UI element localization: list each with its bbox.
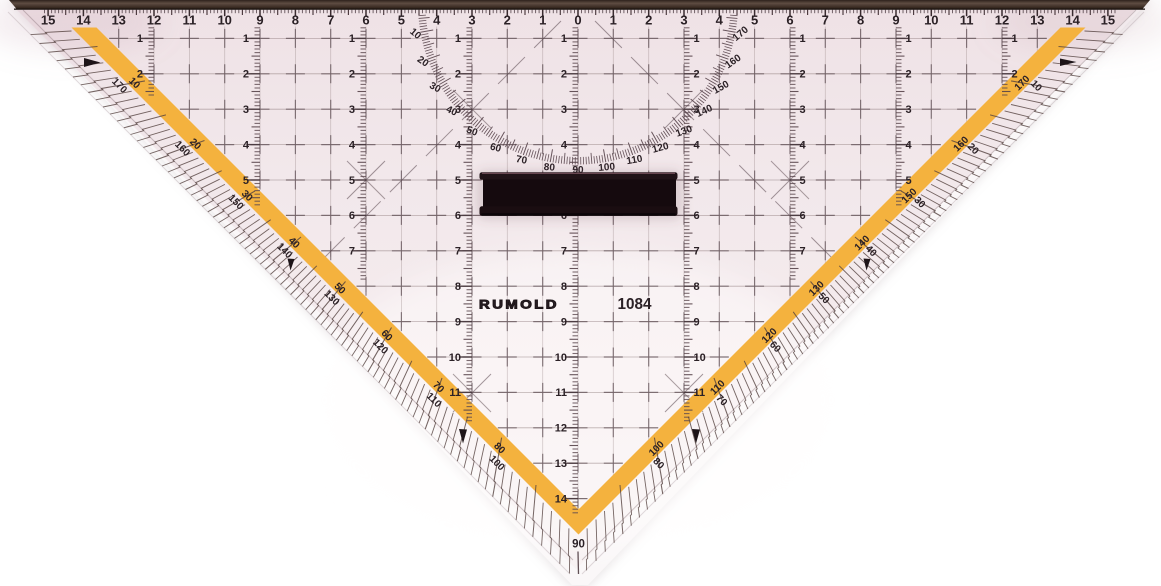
svg-text:7: 7	[694, 246, 700, 258]
svg-text:12: 12	[555, 423, 567, 435]
svg-text:1: 1	[455, 33, 461, 45]
svg-text:10: 10	[217, 13, 231, 28]
svg-text:7: 7	[349, 246, 355, 258]
svg-text:10: 10	[555, 352, 567, 364]
svg-text:10: 10	[694, 352, 706, 364]
svg-text:5: 5	[694, 175, 700, 187]
svg-text:13: 13	[111, 13, 125, 28]
svg-text:1: 1	[800, 33, 806, 45]
svg-text:3: 3	[800, 104, 806, 116]
svg-text:8: 8	[857, 13, 864, 28]
svg-text:3: 3	[906, 104, 912, 116]
svg-text:7: 7	[822, 13, 829, 28]
svg-text:8: 8	[455, 281, 461, 293]
svg-text:9: 9	[256, 13, 263, 28]
svg-text:7: 7	[455, 246, 461, 258]
svg-text:3: 3	[680, 13, 687, 28]
svg-text:5: 5	[455, 175, 461, 187]
svg-text:2: 2	[1012, 69, 1018, 81]
svg-text:1: 1	[539, 13, 546, 28]
svg-text:1: 1	[561, 33, 567, 45]
svg-text:7: 7	[561, 246, 567, 258]
svg-text:4: 4	[716, 13, 724, 28]
svg-text:11: 11	[555, 387, 567, 399]
svg-text:3: 3	[243, 104, 249, 116]
svg-text:90: 90	[572, 539, 585, 551]
svg-text:5: 5	[906, 175, 912, 187]
svg-text:11: 11	[960, 13, 974, 28]
svg-text:2: 2	[906, 69, 912, 81]
svg-text:4: 4	[694, 139, 701, 151]
svg-text:14: 14	[76, 13, 91, 28]
svg-text:2: 2	[561, 69, 567, 81]
svg-text:11: 11	[183, 13, 197, 28]
svg-text:15: 15	[41, 13, 55, 28]
svg-text:6: 6	[349, 210, 355, 222]
svg-text:1: 1	[906, 33, 912, 45]
svg-text:9: 9	[455, 316, 461, 328]
svg-text:8: 8	[292, 13, 299, 28]
svg-text:1: 1	[694, 33, 700, 45]
svg-text:8: 8	[694, 281, 700, 293]
svg-text:4: 4	[243, 139, 250, 151]
svg-text:4: 4	[561, 139, 568, 151]
svg-text:7: 7	[327, 13, 334, 28]
svg-text:2: 2	[349, 69, 355, 81]
svg-text:0: 0	[574, 13, 581, 28]
svg-text:13: 13	[1030, 13, 1044, 28]
svg-text:6: 6	[362, 13, 369, 28]
svg-text:5: 5	[751, 13, 758, 28]
svg-text:3: 3	[468, 13, 475, 28]
svg-text:3: 3	[561, 104, 567, 116]
svg-text:4: 4	[433, 13, 441, 28]
svg-text:1: 1	[243, 33, 249, 45]
svg-text:1: 1	[137, 33, 143, 45]
svg-text:5: 5	[243, 175, 249, 187]
svg-text:10: 10	[449, 352, 461, 364]
svg-text:4: 4	[800, 139, 807, 151]
svg-text:1084: 1084	[618, 296, 652, 313]
svg-text:2: 2	[504, 13, 511, 28]
svg-text:11: 11	[694, 387, 706, 399]
svg-text:12: 12	[147, 13, 161, 28]
svg-text:1: 1	[1012, 33, 1018, 45]
svg-text:9: 9	[694, 316, 700, 328]
svg-text:2: 2	[455, 69, 461, 81]
svg-text:RUMOLD: RUMOLD	[479, 298, 559, 312]
svg-text:12: 12	[995, 13, 1009, 28]
svg-text:5: 5	[349, 175, 355, 187]
svg-text:2: 2	[694, 69, 700, 81]
svg-text:4: 4	[906, 139, 913, 151]
svg-text:3: 3	[349, 104, 355, 116]
svg-text:2: 2	[243, 69, 249, 81]
svg-text:9: 9	[561, 316, 567, 328]
svg-text:5: 5	[398, 13, 405, 28]
svg-text:1: 1	[349, 33, 355, 45]
svg-text:4: 4	[455, 139, 462, 151]
svg-text:10: 10	[924, 13, 938, 28]
svg-text:6: 6	[786, 13, 793, 28]
svg-text:2: 2	[645, 13, 652, 28]
svg-text:14: 14	[555, 493, 568, 505]
svg-text:13: 13	[555, 458, 567, 470]
svg-text:1: 1	[610, 13, 617, 28]
svg-text:8: 8	[561, 281, 567, 293]
svg-text:6: 6	[800, 210, 806, 222]
svg-text:4: 4	[349, 139, 356, 151]
svg-text:2: 2	[800, 69, 806, 81]
svg-text:14: 14	[1065, 13, 1080, 28]
svg-text:11: 11	[449, 387, 461, 399]
svg-text:6: 6	[694, 210, 700, 222]
svg-text:7: 7	[800, 246, 806, 258]
svg-text:15: 15	[1101, 13, 1115, 28]
svg-text:9: 9	[892, 13, 899, 28]
svg-text:5: 5	[800, 175, 806, 187]
svg-text:6: 6	[455, 210, 461, 222]
